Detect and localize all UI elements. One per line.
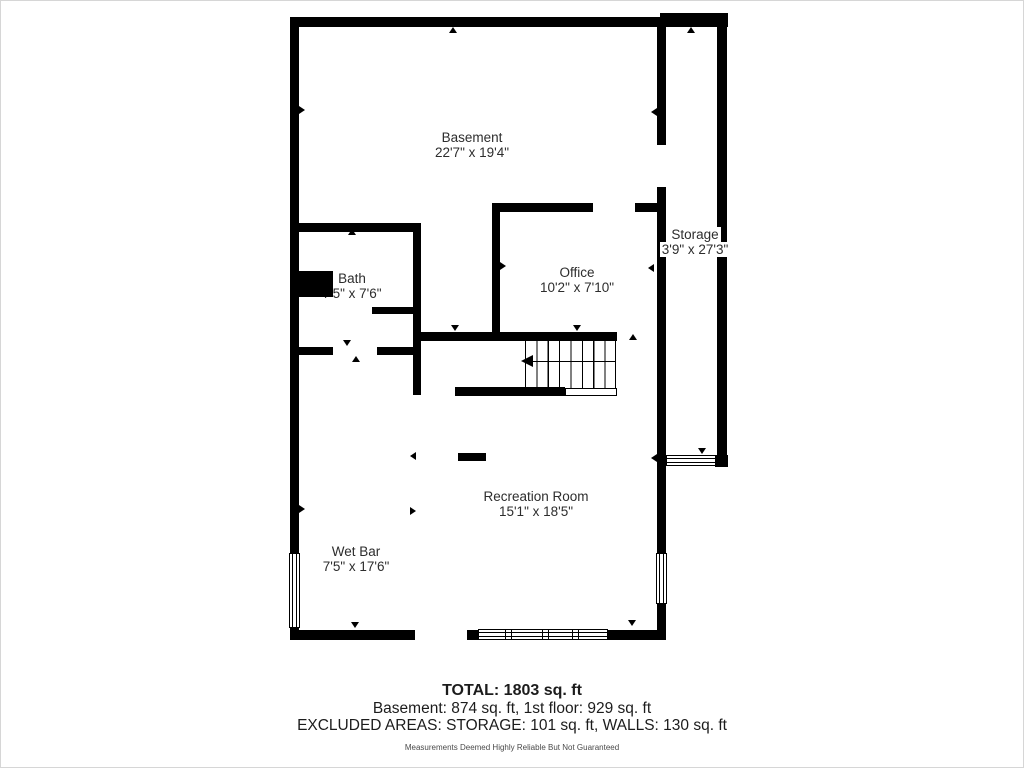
- wall-bath-closet-stub: [372, 307, 421, 314]
- room-dims: 22'7" x 19'4": [392, 145, 552, 160]
- door-tick: [651, 454, 657, 462]
- door-tick: [629, 334, 637, 340]
- wall-bottom-mid: [467, 630, 478, 640]
- window-divider: [542, 630, 549, 639]
- wall-office-top-right: [635, 203, 666, 212]
- door-tick: [352, 356, 360, 362]
- wall-bath-bottom-right: [377, 347, 421, 355]
- room-name: Recreation Room: [456, 489, 616, 504]
- stair-railing: [565, 388, 617, 396]
- door-tick: [410, 452, 416, 460]
- door-tick: [574, 206, 582, 212]
- wall-storage-cap: [715, 455, 728, 467]
- room-label-wetbar: Wet Bar 7'5" x 17'6": [296, 544, 416, 574]
- room-label-basement: Basement 22'7" x 19'4": [392, 130, 552, 160]
- door-tick: [651, 108, 657, 116]
- wall-recroom-stub: [458, 453, 486, 461]
- wall-top-main: [290, 17, 666, 27]
- wall-right-lower: [657, 604, 666, 640]
- room-dims: 3'9" x 27'3": [660, 242, 731, 257]
- door-tick: [698, 448, 706, 454]
- summary-excluded: EXCLUDED AREAS: STORAGE: 101 sq. ft, WAL…: [0, 717, 1024, 734]
- room-dims: 15'1" x 18'5": [456, 504, 616, 519]
- door-tick: [500, 262, 506, 270]
- window-divider: [505, 630, 512, 639]
- wall-office-left: [492, 203, 500, 341]
- summary-total: TOTAL: 1803 sq. ft: [0, 682, 1024, 700]
- room-name: Basement: [392, 130, 552, 145]
- door-tick: [628, 620, 636, 626]
- summary-disclaimer: Measurements Deemed Highly Reliable But …: [0, 743, 1024, 753]
- room-dims: 7'5" x 17'6": [296, 559, 416, 574]
- room-label-storage: Storage 3'9" x 27'3": [656, 227, 734, 257]
- door-tick: [348, 229, 356, 235]
- room-dims: 10'2" x 7'10": [502, 280, 652, 295]
- room-name: Storage: [669, 227, 720, 242]
- wall-bottom-left: [290, 630, 415, 640]
- wall-right-upper: [657, 27, 666, 145]
- summary-floors: Basement: 874 sq. ft, 1st floor: 929 sq.…: [0, 700, 1024, 717]
- door-tick: [299, 106, 305, 114]
- stair-direction-arrow-icon: [521, 355, 533, 367]
- door-tick: [351, 622, 359, 628]
- door-tick: [293, 346, 299, 354]
- door-tick: [648, 264, 654, 272]
- staircase-treads: [525, 341, 616, 390]
- wall-stair-corridor-top: [413, 332, 617, 341]
- stair-direction-line: [532, 361, 616, 362]
- door-tick: [573, 325, 581, 331]
- room-label-office: Office 10'2" x 7'10": [502, 265, 652, 295]
- room-name: Wet Bar: [296, 544, 416, 559]
- door-tick: [687, 27, 695, 33]
- bath-fixture-block: [298, 271, 333, 297]
- area-summary: TOTAL: 1803 sq. ft Basement: 874 sq. ft,…: [0, 682, 1024, 753]
- window-recroom-right: [656, 553, 667, 604]
- door-tick: [343, 340, 351, 346]
- floor-plan: Basement 22'7" x 19'4" Storage 3'9" x 27…: [0, 0, 1024, 768]
- room-name: Office: [502, 265, 652, 280]
- door-tick: [299, 505, 305, 513]
- window-wetbar-left: [289, 553, 300, 628]
- window-recroom-bottom: [478, 629, 608, 640]
- door-tick: [451, 325, 459, 331]
- door-tick: [449, 27, 457, 33]
- door-tick: [410, 507, 416, 515]
- room-label-recreation: Recreation Room 15'1" x 18'5": [456, 489, 616, 519]
- window-storage-bottom: [666, 455, 716, 466]
- window-divider: [572, 630, 579, 639]
